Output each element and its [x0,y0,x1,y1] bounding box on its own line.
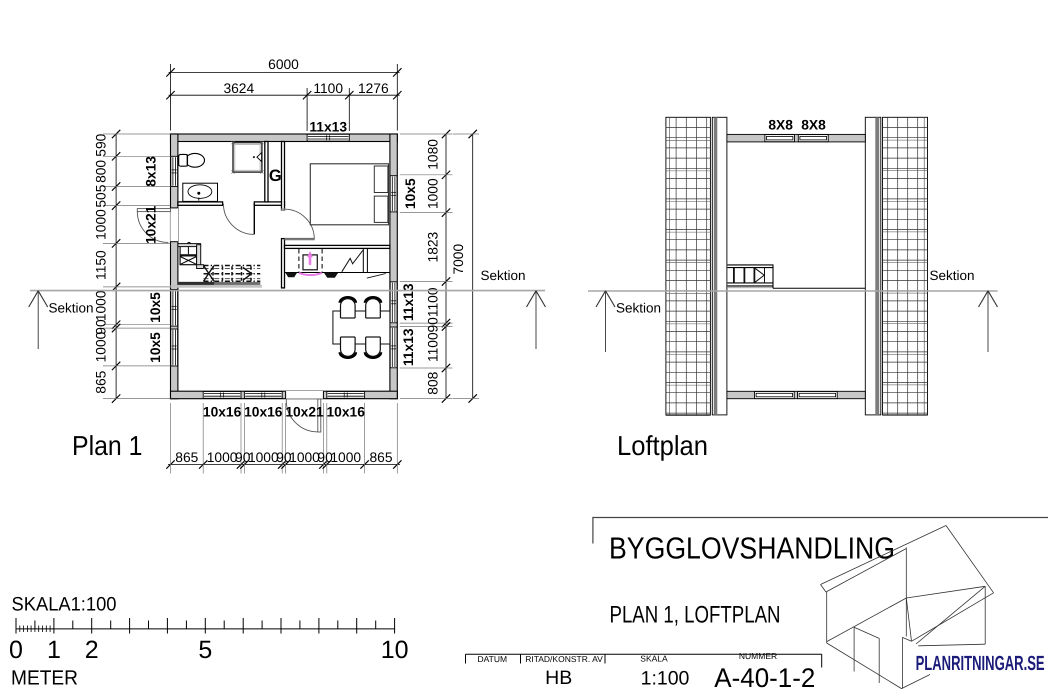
svg-text:11x13: 11x13 [401,283,416,321]
svg-text:6000: 6000 [268,57,299,72]
svg-text:1:100: 1:100 [641,668,690,690]
svg-text:1276: 1276 [358,81,389,96]
svg-text:865: 865 [175,450,198,465]
svg-text:PLANRITNINGAR.SE: PLANRITNINGAR.SE [916,652,1045,675]
svg-text:10x5: 10x5 [148,332,163,363]
svg-text:865: 865 [369,450,392,465]
svg-text:1000: 1000 [94,331,109,362]
svg-text:7000: 7000 [451,244,466,275]
svg-text:1100: 1100 [426,332,441,362]
svg-text:2: 2 [85,636,99,664]
svg-text:10x16: 10x16 [203,405,242,420]
svg-text:A-40-1-2: A-40-1-2 [714,663,815,693]
svg-text:1080: 1080 [426,139,441,170]
svg-text:10x21: 10x21 [285,405,324,420]
svg-text:Plan 1: Plan 1 [72,430,143,461]
svg-text:90: 90 [426,317,441,333]
svg-text:10x16: 10x16 [327,405,366,420]
svg-text:865: 865 [94,370,109,393]
svg-text:11x13: 11x13 [401,328,416,366]
svg-text:1100: 1100 [426,287,441,317]
svg-text:Sektion: Sektion [930,268,975,283]
svg-text:Loftplan: Loftplan [617,430,708,461]
svg-text:10x5: 10x5 [403,178,418,209]
svg-text:3624: 3624 [223,81,254,96]
svg-text:1100: 1100 [313,81,343,96]
svg-text:10x16: 10x16 [244,405,283,420]
svg-text:RITAD/KONSTR. AV: RITAD/KONSTR. AV [525,654,603,664]
svg-text:SKALA: SKALA [640,654,668,664]
svg-text:11x13: 11x13 [309,120,347,135]
svg-text:METER: METER [11,667,78,690]
svg-text:10x21: 10x21 [144,205,159,244]
svg-text:DATUM: DATUM [478,654,508,664]
svg-text:800: 800 [94,160,109,183]
svg-text:1823: 1823 [426,231,441,262]
svg-text:505: 505 [94,184,109,207]
svg-text:Sektion: Sektion [49,301,94,316]
svg-text:1000: 1000 [289,450,320,465]
svg-text:8x13: 8x13 [144,156,159,187]
svg-text:1000: 1000 [207,450,238,465]
svg-text:5: 5 [198,636,212,664]
svg-text:0: 0 [9,636,23,664]
svg-text:8X8: 8X8 [768,118,793,133]
svg-text:1000: 1000 [330,450,361,465]
svg-text:1000: 1000 [94,209,109,240]
svg-text:590: 590 [94,133,109,156]
svg-text:8X8: 8X8 [801,118,826,133]
svg-text:1000: 1000 [94,290,109,321]
svg-text:90: 90 [94,319,109,335]
svg-text:HB: HB [545,667,572,689]
svg-text:G: G [269,167,282,185]
svg-text:1000: 1000 [426,178,441,209]
svg-text:SKALA1:100: SKALA1:100 [12,594,117,616]
svg-text:808: 808 [426,371,441,394]
svg-text:BYGGLOVSHANDLING: BYGGLOVSHANDLING [609,532,895,566]
svg-text:Sektion: Sektion [481,268,526,283]
svg-text:1: 1 [47,636,61,664]
svg-text:Sektion: Sektion [616,301,661,316]
svg-text:1150: 1150 [94,250,109,280]
svg-text:10x5: 10x5 [148,292,163,323]
svg-text:10: 10 [381,636,409,664]
svg-text:1000: 1000 [248,450,279,465]
svg-text:PLAN 1, LOFTPLAN: PLAN 1, LOFTPLAN [610,602,781,629]
svg-text:NUMMER: NUMMER [739,651,777,661]
